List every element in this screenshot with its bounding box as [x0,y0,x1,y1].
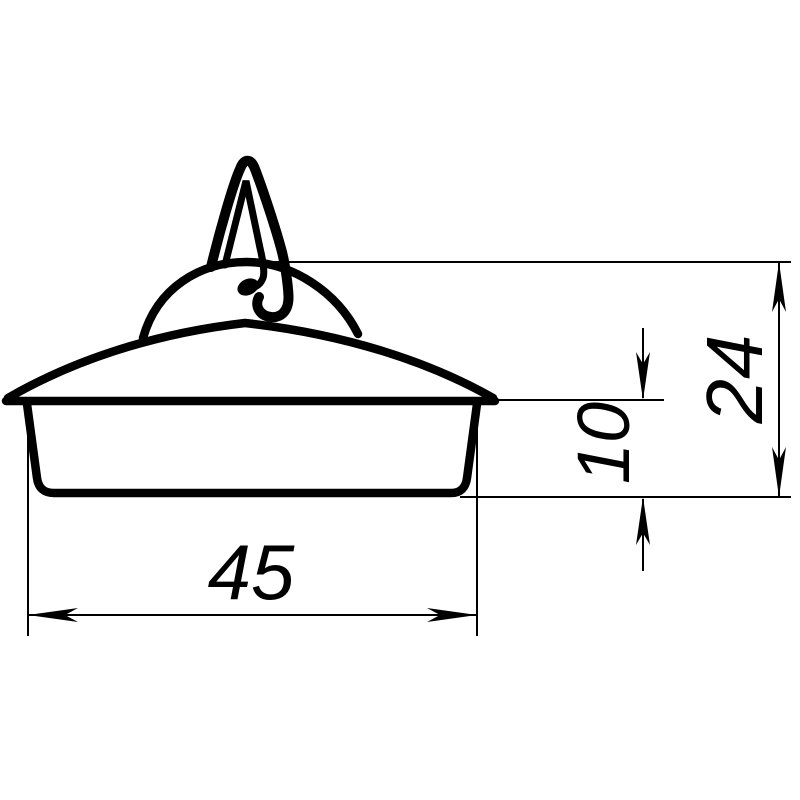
cup-body-outline [27,404,477,493]
dimension-cup-height-group: 10 [491,328,664,571]
cap-top-outline [8,323,493,398]
dimension-label-cup-height: 10 [562,402,645,484]
dimension-width-group: 45 [28,406,477,636]
dimension-label-width: 45 [208,528,295,616]
technical-drawing: 45 10 24 [0,0,800,800]
hook-group [211,161,289,317]
dimension-label-overall-height: 24 [690,335,779,425]
plug-outline-group [6,262,495,493]
drawing-canvas: 45 10 24 [0,0,800,800]
